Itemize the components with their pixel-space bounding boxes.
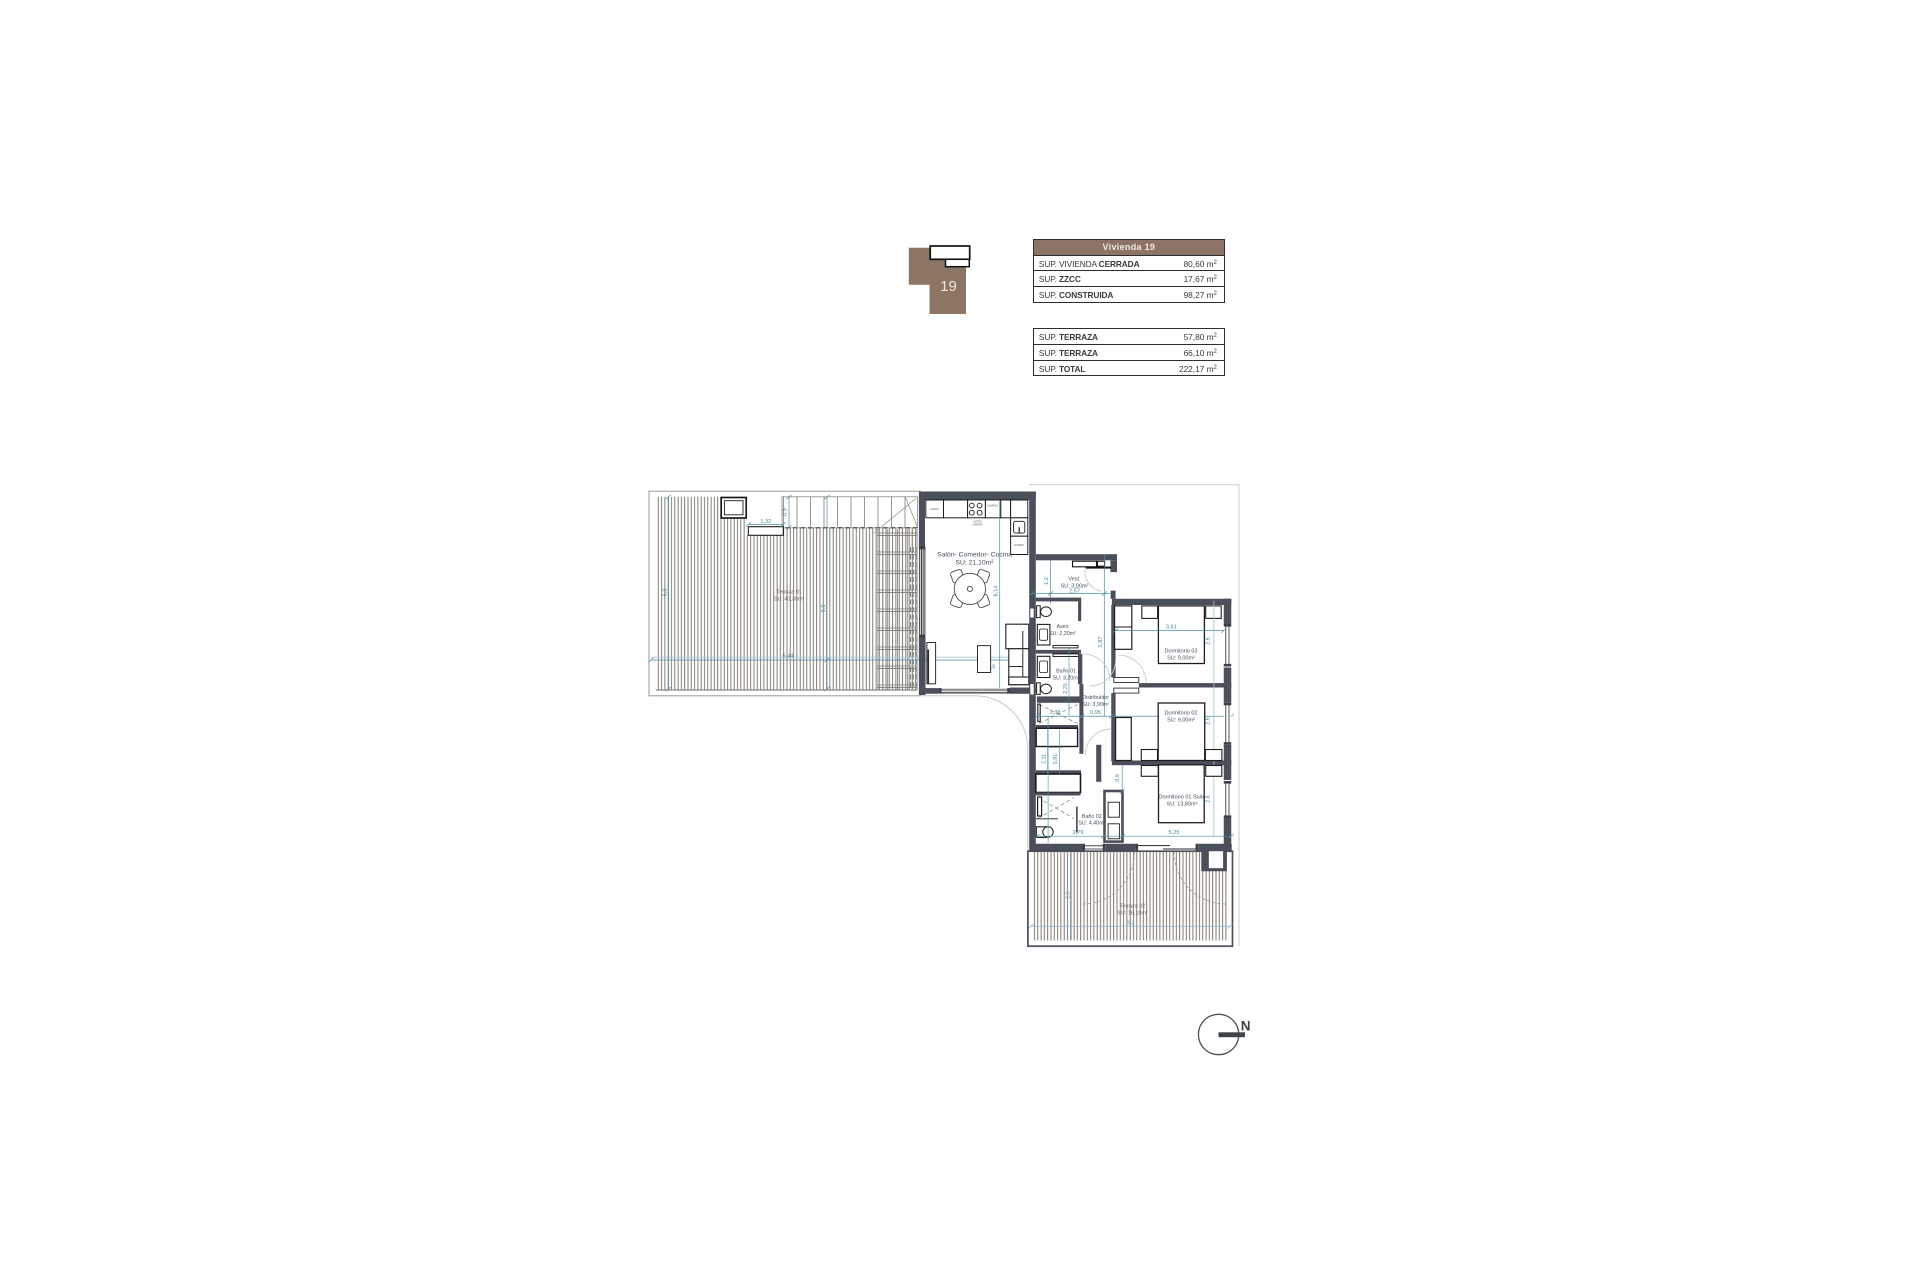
svg-text:SU: 21,10m²: SU: 21,10m² <box>955 560 994 567</box>
svg-text:5,87: 5,87 <box>1098 637 1104 648</box>
svg-text:CERAM.: CERAM. <box>972 523 983 527</box>
svg-text:Dormitorio 02: Dormitorio 02 <box>1164 711 1197 717</box>
svg-text:SU: 9,00m²: SU: 9,00m² <box>1167 656 1195 662</box>
svg-text:3,61: 3,61 <box>1166 624 1177 630</box>
svg-text:SU: 9,00m²: SU: 9,00m² <box>1167 718 1195 724</box>
svg-text:2,6: 2,6 <box>1206 637 1212 645</box>
svg-text:SU: 3,20m²: SU: 3,20m² <box>1053 676 1080 682</box>
svg-text:Dormitorio 03: Dormitorio 03 <box>1164 649 1197 655</box>
svg-text:LAVAVAJ.: LAVAVAJ. <box>987 504 999 508</box>
svg-text:Aseo: Aseo <box>1056 624 1068 630</box>
svg-text:1,32: 1,32 <box>760 519 771 525</box>
svg-text:Dormitorio 01 Suite: Dormitorio 01 Suite <box>1158 795 1205 801</box>
svg-text:5,25: 5,25 <box>1169 830 1180 836</box>
svg-text:Salón- Comedor- Cocina: Salón- Comedor- Cocina <box>937 552 1012 559</box>
svg-text:8,2: 8,2 <box>1127 920 1135 926</box>
svg-text:5,5: 5,5 <box>821 604 827 612</box>
svg-text:0,9: 0,9 <box>783 508 789 516</box>
svg-text:2,9: 2,9 <box>1065 891 1071 899</box>
svg-text:HORNO: HORNO <box>1014 543 1024 547</box>
svg-text:Distribuidor: Distribuidor <box>1082 695 1109 701</box>
svg-text:1,38: 1,38 <box>1050 710 1061 716</box>
svg-text:SU: 40,30m²: SU: 40,30m² <box>774 597 804 603</box>
svg-text:5,44: 5,44 <box>783 653 794 659</box>
svg-text:Baño 02: Baño 02 <box>1082 814 1102 820</box>
svg-text:FRIGO: FRIGO <box>930 507 939 511</box>
svg-text:Vest.: Vest. <box>1068 577 1081 583</box>
svg-text:Terraza 01: Terraza 01 <box>776 590 801 596</box>
svg-text:0,95: 0,95 <box>1090 710 1101 716</box>
svg-text:2,25: 2,25 <box>1063 683 1069 694</box>
svg-text:SU: 2,20m²: SU: 2,20m² <box>1049 631 1076 637</box>
svg-text:Baño 01: Baño 01 <box>1056 669 1076 675</box>
svg-text:2,6: 2,6 <box>1206 795 1212 803</box>
svg-text:2,11: 2,11 <box>1041 754 1047 764</box>
svg-text:2,57: 2,57 <box>1069 588 1080 594</box>
svg-text:6,14: 6,14 <box>994 586 1000 597</box>
svg-text:1,2: 1,2 <box>1044 577 1050 585</box>
svg-text:2,79: 2,79 <box>1073 830 1084 836</box>
svg-text:0,9: 0,9 <box>1115 774 1121 782</box>
svg-text:6,3: 6,3 <box>662 589 668 597</box>
svg-text:N: N <box>1241 1019 1251 1034</box>
svg-text:SU: 3,90m²: SU: 3,90m² <box>1082 702 1109 708</box>
svg-text:SU: 13,80m²: SU: 13,80m² <box>1167 801 1198 807</box>
svg-text:2,6: 2,6 <box>1206 717 1212 725</box>
svg-text:SU: 16,10m²: SU: 16,10m² <box>1117 911 1147 917</box>
svg-text:Terraza 02: Terraza 02 <box>1120 904 1145 910</box>
svg-text:0,91: 0,91 <box>1053 754 1059 765</box>
svg-text:SU: 4,40m²: SU: 4,40m² <box>1078 821 1105 827</box>
